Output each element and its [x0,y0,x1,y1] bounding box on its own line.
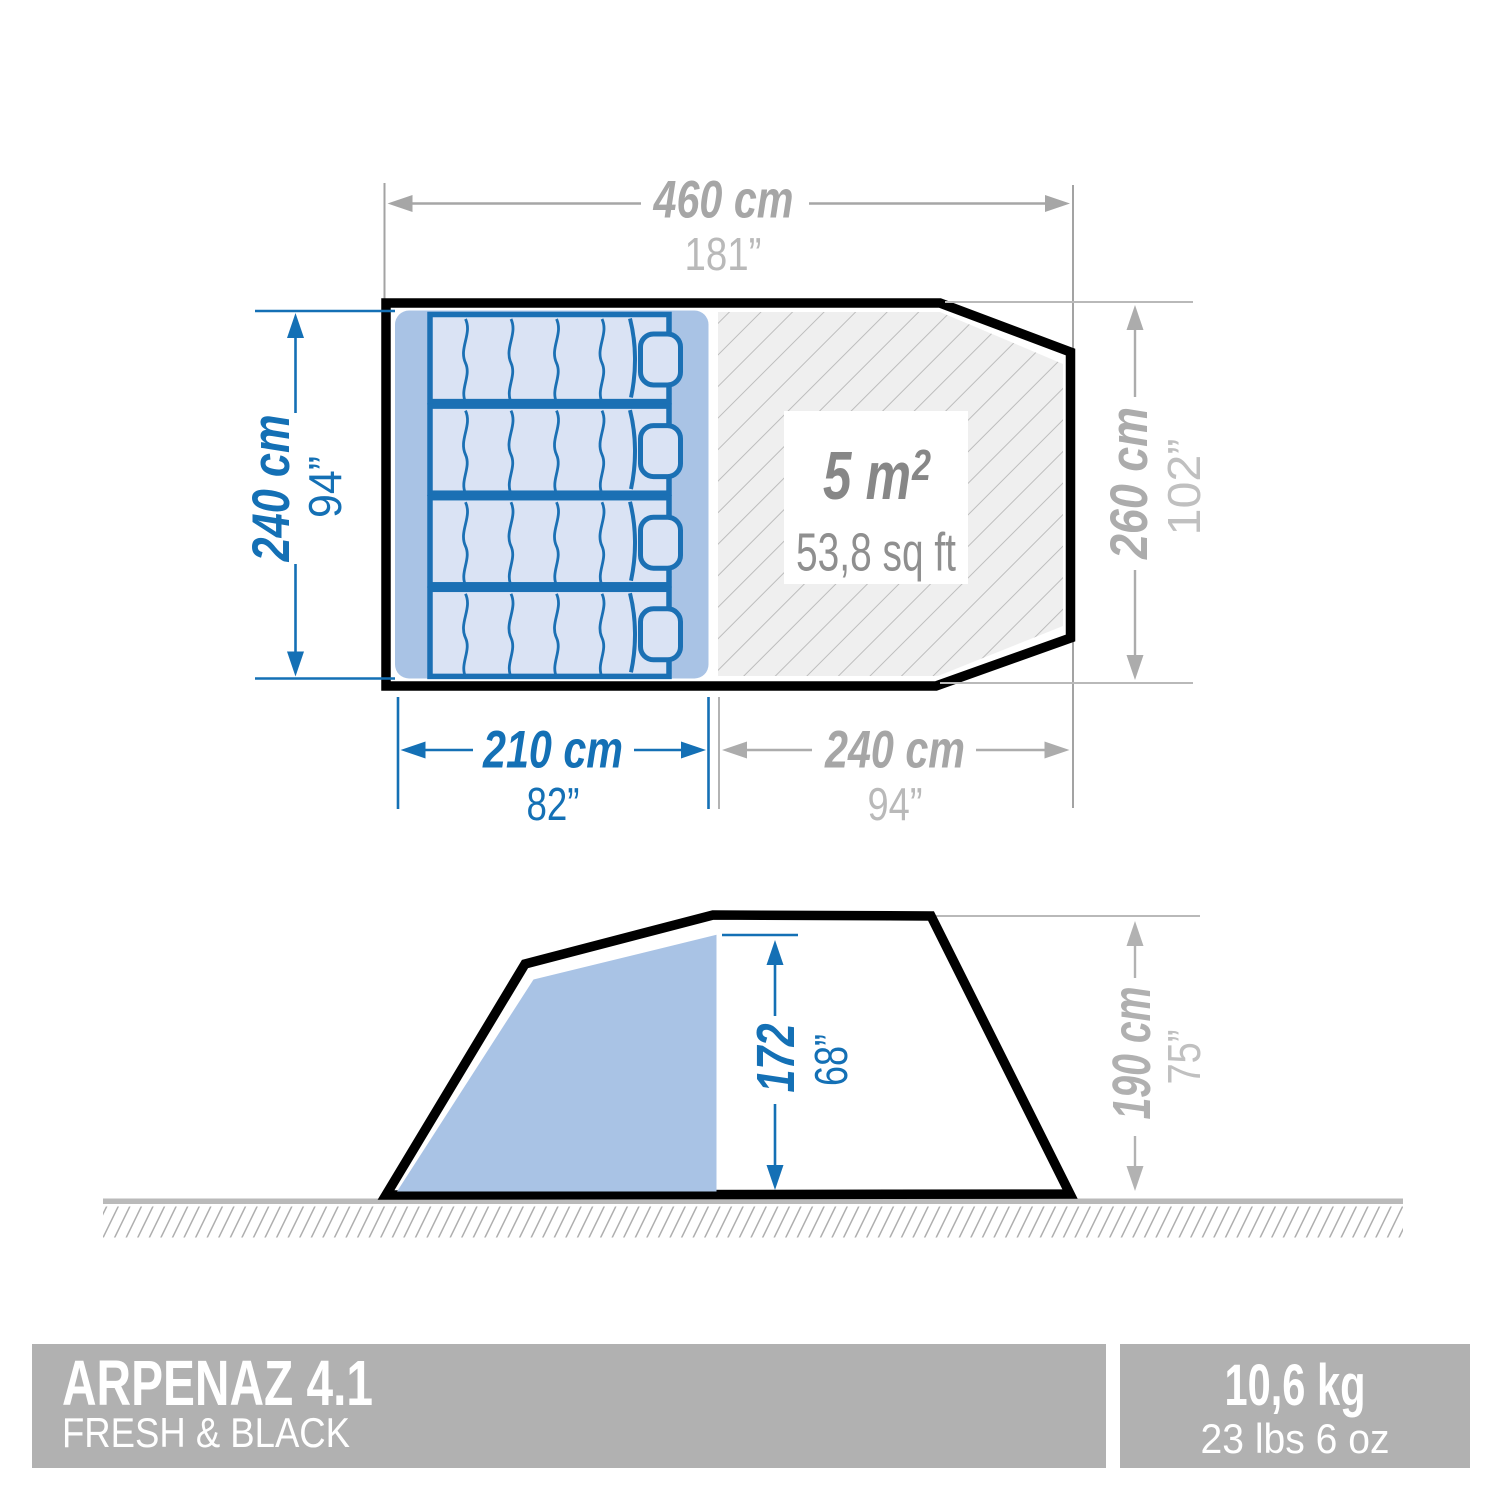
svg-text:82”: 82” [527,778,580,830]
svg-text:102”: 102” [1158,439,1210,536]
svg-text:172: 172 [746,1024,806,1093]
svg-text:23 lbs 6 oz: 23 lbs 6 oz [1201,1415,1390,1462]
svg-text:240 cm: 240 cm [824,721,965,780]
svg-text:181”: 181” [685,228,762,280]
svg-text:190 cm: 190 cm [1102,987,1162,1120]
svg-text:FRESH & BLACK: FRESH & BLACK [62,1409,350,1456]
svg-text:2: 2 [911,441,931,490]
svg-text:240 cm: 240 cm [242,415,301,563]
svg-text:5 m: 5 m [823,438,911,514]
svg-text:75”: 75” [1158,1030,1210,1085]
svg-text:94”: 94” [299,456,351,518]
svg-text:260 cm: 260 cm [1100,407,1159,560]
svg-text:210 cm: 210 cm [482,721,623,780]
svg-text:53,8 sq ft: 53,8 sq ft [796,523,956,583]
svg-text:10,6 kg: 10,6 kg [1225,1353,1366,1418]
svg-text:460 cm: 460 cm [653,171,794,230]
svg-text:68”: 68” [805,1034,857,1086]
svg-text:94”: 94” [868,778,923,830]
